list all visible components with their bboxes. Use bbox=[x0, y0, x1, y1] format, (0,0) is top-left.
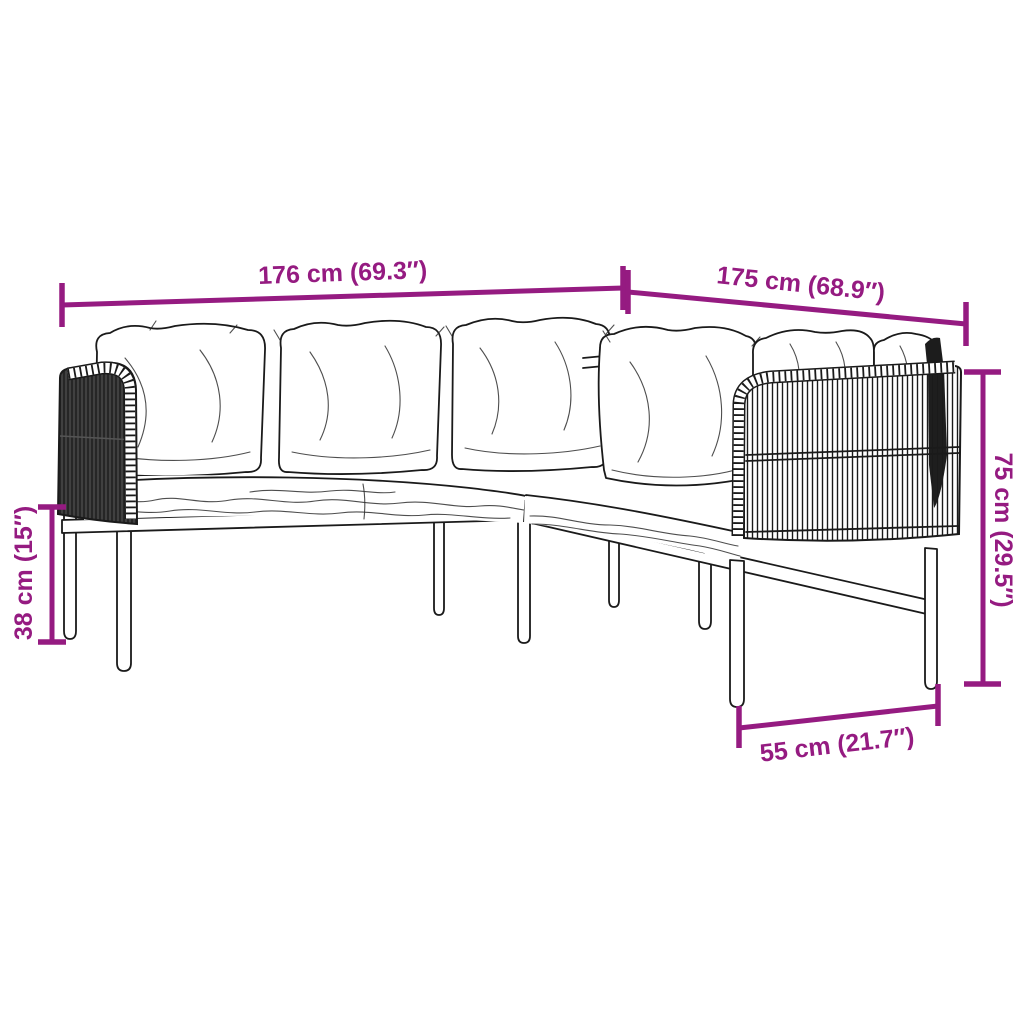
dimension-seat-depth: 55 cm (21.7″) bbox=[739, 684, 938, 768]
sofa-leg bbox=[609, 536, 619, 607]
dimension-label-width-left: 176 cm (69.3″) bbox=[258, 256, 428, 290]
dimension-label-backrest-height: 75 cm (29.5″) bbox=[989, 452, 1017, 607]
sofa-leg bbox=[925, 548, 937, 689]
sofa-leg bbox=[730, 560, 744, 707]
dimension-line bbox=[62, 288, 623, 305]
dimension-seat-height: 38 cm (15″) bbox=[10, 506, 66, 642]
dimension-backrest-height: 75 cm (29.5″) bbox=[964, 372, 1017, 684]
diagram-svg: 176 cm (69.3″) 175 cm (68.9″) 75 cm (29.… bbox=[0, 0, 1024, 1024]
sofa-leg bbox=[699, 556, 711, 629]
back-cushions-left bbox=[95, 318, 614, 476]
dimension-label-width-right: 175 cm (68.9″) bbox=[715, 261, 886, 307]
sofa-leg bbox=[117, 529, 131, 671]
legs-left bbox=[64, 512, 530, 671]
sofa-leg bbox=[434, 512, 444, 615]
dimension-width-left: 176 cm (69.3″) bbox=[62, 256, 623, 327]
product-dimension-diagram: 176 cm (69.3″) 175 cm (68.9″) 75 cm (29.… bbox=[0, 0, 1024, 1024]
back-cushion bbox=[279, 321, 441, 474]
left-armrest bbox=[58, 363, 137, 524]
right-armrest bbox=[738, 364, 962, 544]
dimension-label-seat-height: 38 cm (15″) bbox=[10, 506, 38, 640]
back-cushion bbox=[452, 318, 610, 471]
sofa-leg bbox=[518, 514, 530, 643]
sofa-line-art bbox=[58, 318, 962, 707]
dimension-label-seat-depth: 55 cm (21.7″) bbox=[758, 722, 915, 767]
